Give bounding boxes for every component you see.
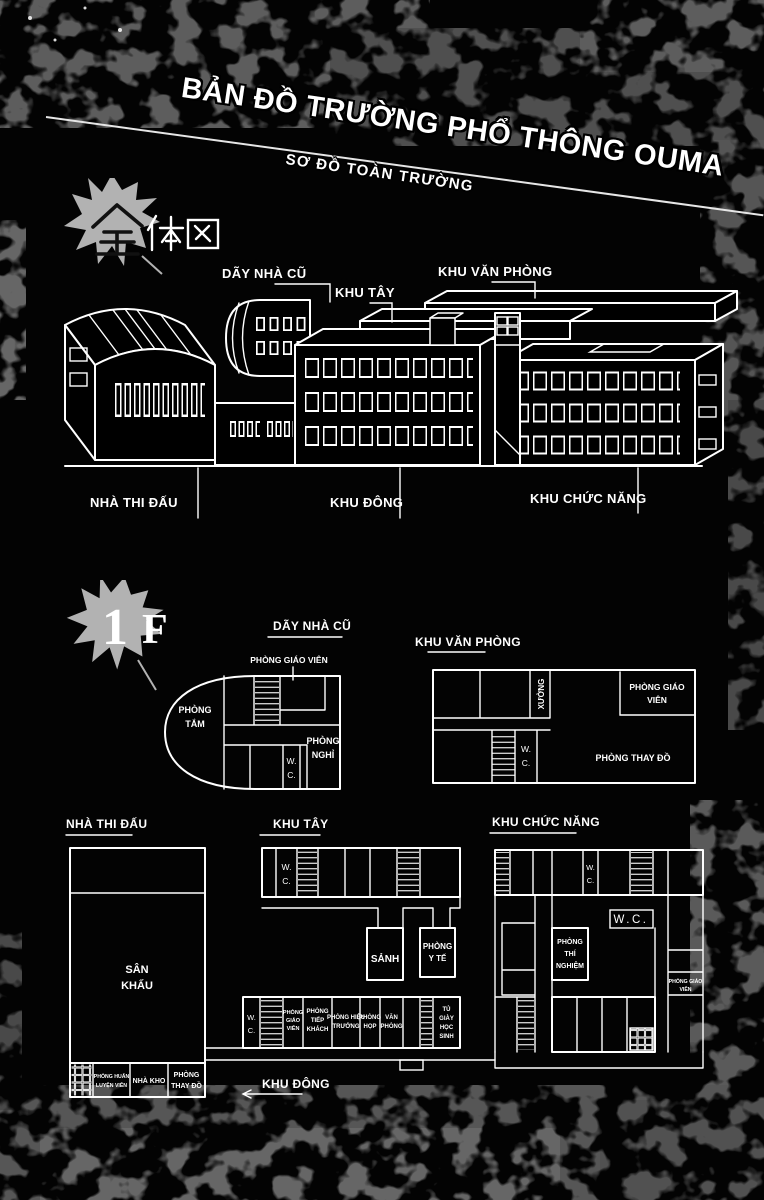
room-phong-hieu-truong-2: TRƯỞNG — [332, 1023, 359, 1030]
room-phong-giao-vien: PHÒNG — [283, 1008, 303, 1016]
plan-khu-tay: KHU TÂY W. C. SẢNH PHÒNG Y TẾ — [260, 816, 460, 980]
label-nha-thi-dau: NHÀ THI ĐẤU — [90, 495, 178, 510]
room-phong-hop-2: HỌP — [363, 1024, 376, 1030]
room-phong-nghi-2: NGHỈ — [312, 749, 335, 760]
wc-label: W. — [247, 1013, 256, 1022]
room-xuong: XƯỞNG — [537, 679, 546, 710]
stairs — [631, 852, 652, 893]
stairs — [261, 1000, 282, 1046]
room-san-khau-2: KHẤU — [121, 979, 153, 992]
room-phong-giao-vien: PHÒNG GIÁO — [629, 681, 685, 692]
label-khu-chuc-nang: KHU CHỨC NĂNG — [530, 491, 647, 506]
plan-nha-thi-dau: NHÀ THI ĐẤU SÂN KHẤU PHÒNG HUẤN LUYỆN VI… — [66, 816, 205, 1097]
wc-label-2: C. — [287, 770, 296, 780]
manga-map-page: BẢN ĐỒ TRƯỜNG PHỔ THÔNG OUMA SƠ ĐỒ TOÀN … — [0, 0, 764, 1200]
east-building — [295, 313, 508, 465]
wc-label: W. — [586, 863, 595, 872]
room-phong-tiep-khach-2: TIẾP — [311, 1017, 324, 1024]
wc-label: W. — [282, 862, 292, 872]
room-phong-tiep-khach-3: KHÁCH — [307, 1026, 329, 1033]
plan-khu-chuc-nang: KHU CHỨC NĂNG W. C. PHÒNG GIÁO VIÊN W.C.… — [490, 814, 703, 1068]
label-khu-van-phong: KHU VĂN PHÒNG — [438, 264, 552, 279]
stairs — [492, 735, 515, 777]
stairs — [398, 850, 419, 895]
room-phong-giao-vien-2: GIÁO — [286, 1017, 301, 1024]
room-phong-tam-2: TẮM — [185, 719, 205, 729]
room-phong-huan-luyen-vien-2: LUYỆN VIÊN — [96, 1081, 127, 1089]
floor1-section: 1 F DÃY NHÀ CŨ PHÒNG GIÁO VIÊN PHÒNG TẮM… — [30, 580, 740, 1120]
room-van-phong-2: PHÒNG — [380, 1022, 402, 1030]
stairs — [298, 850, 317, 895]
bridge-tower — [495, 313, 520, 465]
room-phong-giao-vien-3: VIÊN — [287, 1024, 300, 1032]
label-khu-dong: KHU ĐÔNG — [330, 495, 403, 510]
plan-title: KHU TÂY — [273, 816, 328, 831]
room-san-khau: SÂN — [125, 963, 148, 976]
function-building — [505, 344, 723, 465]
room-phong-tiep-khach: PHÒNG — [306, 1007, 328, 1015]
label-day-nha-cu: DÃY NHÀ CŨ — [222, 266, 306, 281]
plan-title: NHÀ THI ĐẤU — [66, 816, 147, 831]
room-tu-giay-hoc-sinh-2: GIÀY — [439, 1015, 454, 1022]
overview-marker — [64, 178, 218, 274]
lockers — [631, 1029, 653, 1050]
wc-label: W. — [287, 756, 297, 766]
room-phong-thay-do: PHÒNG THAY ĐỒ — [595, 752, 670, 763]
room-tu-giay-hoc-sinh-4: SINH — [439, 1034, 453, 1040]
stairs — [421, 1000, 432, 1046]
plan-title: KHU VĂN PHÒNG — [415, 634, 521, 649]
room-phong-hop: PHÒNG — [359, 1013, 381, 1021]
khu-dong-wing: W. C. PHÒNG GIÁO VIÊN PHÒNG TIẾP KHÁCH P… — [205, 997, 495, 1098]
wc-label-2: C. — [248, 1026, 256, 1035]
callout-phong-giao-vien: PHÒNG GIÁO VIÊN — [250, 654, 327, 665]
room-phong-thay-do: PHÒNG — [174, 1070, 200, 1079]
room-phong-giao-vien-2: VIÊN — [679, 985, 691, 993]
plan-title: DÃY NHÀ CŨ — [273, 618, 351, 633]
arrow-underline — [243, 1090, 302, 1098]
room-phong-thi-nghiem: PHÒNG — [557, 937, 583, 946]
room-phong-thay-do-2: THAY ĐỒ — [171, 1080, 202, 1090]
wc-label-2: C. — [522, 758, 531, 768]
room-phong-thi-nghiem-3: NGHIỆM — [556, 961, 584, 970]
kanji-zu-icon — [188, 220, 218, 248]
wc-label-2: C. — [282, 876, 291, 886]
room-sanh: SẢNH — [371, 952, 399, 965]
entrance-step — [400, 1060, 423, 1070]
kanji-tai-icon — [148, 216, 183, 250]
stairs — [518, 1000, 534, 1050]
plan-day-nha-cu: DÃY NHÀ CŨ PHÒNG GIÁO VIÊN PHÒNG TẮM PHÒ… — [165, 618, 351, 789]
stairs — [255, 680, 279, 723]
room-phong-huan-luyen-vien: PHÒNG HUẤN — [94, 1072, 130, 1080]
floor-letter: F — [142, 607, 168, 653]
plan-khu-van-phong: KHU VĂN PHÒNG XƯỞNG PHÒNG GIÁO VIÊN W. C… — [415, 634, 695, 783]
floor-number: 1 — [102, 599, 128, 656]
label-khu-dong: KHU ĐÔNG — [262, 1076, 330, 1091]
room-van-phong: VĂN — [385, 1014, 398, 1021]
room-phong-y-te-2: Y TẾ — [429, 953, 447, 963]
room-phong-tam: PHÒNG — [178, 704, 211, 715]
stairs — [496, 852, 509, 893]
room-nha-kho: NHÀ KHO — [133, 1076, 166, 1085]
room-phong-giao-vien: PHÒNG GIÁO — [669, 977, 703, 985]
wc-main-label: W.C. — [614, 914, 649, 926]
label-khu-tay: KHU TÂY — [335, 285, 395, 300]
overview-section: DÃY NHÀ CŨ KHU TÂY KHU VĂN PHÒNG NHÀ THI… — [30, 178, 740, 523]
connector-wing — [215, 403, 295, 465]
gym-building — [65, 309, 215, 460]
room-phong-nghi: PHÒNG — [306, 735, 339, 746]
room-phong-thi-nghiem-2: THÍ — [564, 949, 576, 958]
wc-label-2: C. — [587, 876, 595, 885]
plan-title: KHU CHỨC NĂNG — [492, 814, 600, 829]
wc-label: W. — [521, 744, 531, 754]
room-phong-giao-vien-2: VIÊN — [647, 694, 667, 705]
lockers — [72, 1065, 92, 1096]
room-phong-y-te: PHÒNG — [423, 942, 452, 951]
floor1-marker: 1 F — [58, 580, 171, 690]
room-tu-giay-hoc-sinh: TỦ — [443, 1006, 451, 1013]
room-tu-giay-hoc-sinh-3: HỌC — [440, 1025, 454, 1031]
